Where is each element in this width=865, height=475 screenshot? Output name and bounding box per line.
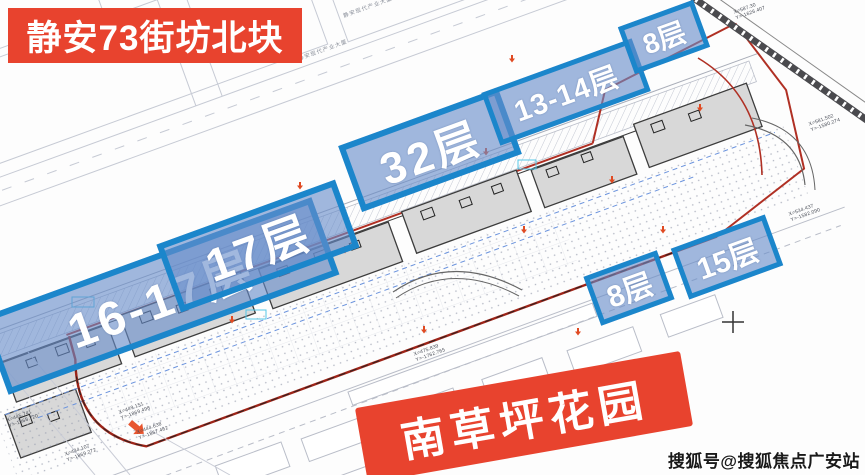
site-plan-screenshot: 静安现代产业大厦 静安现代产业大厦 X=445.741 Y=-1868.720 … <box>0 0 865 475</box>
project-title-banner: 静安73街坊北块 <box>8 8 302 63</box>
survey-cross <box>722 311 744 333</box>
watermark-text: 搜狐号@搜狐焦点广安站 <box>668 447 860 472</box>
